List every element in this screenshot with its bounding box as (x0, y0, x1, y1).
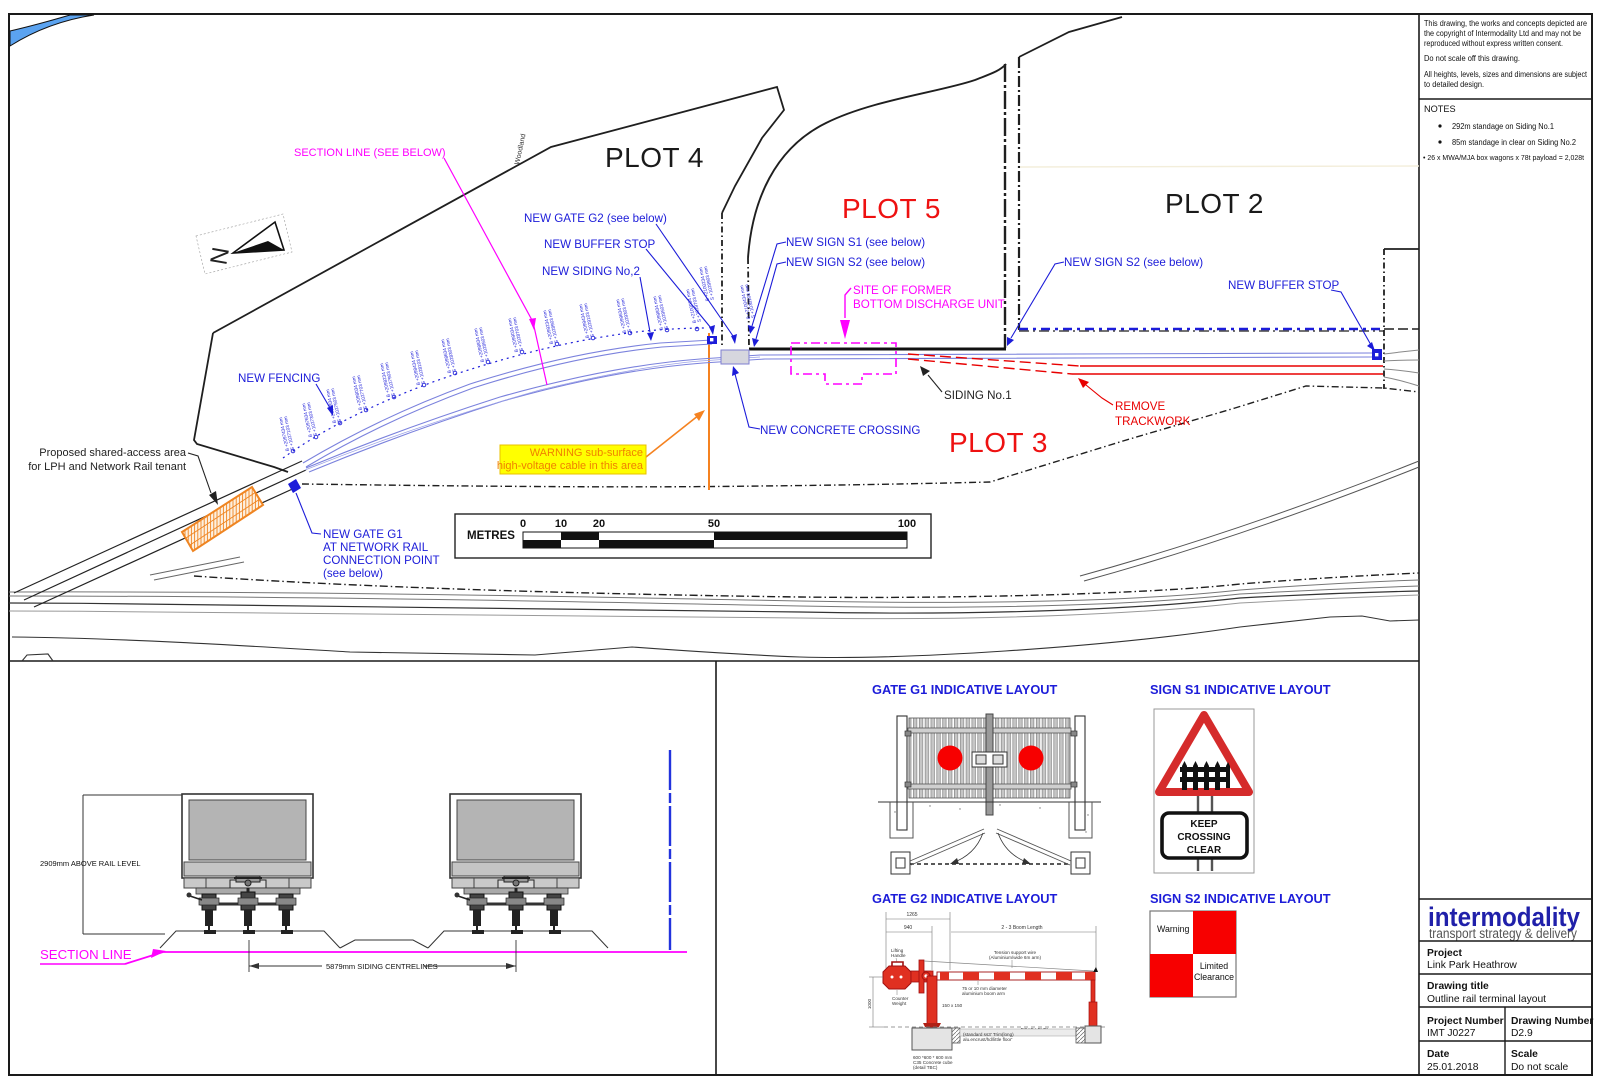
svg-text:5879mm SIDING CENTRELINES: 5879mm SIDING CENTRELINES (326, 962, 438, 971)
svg-text:SIDING No.1: SIDING No.1 (944, 389, 1012, 402)
svg-text:Project: Project (1427, 948, 1462, 959)
svg-text:Drawing Number: Drawing Number (1511, 1016, 1593, 1027)
svg-text:1000: 1000 (867, 998, 872, 1009)
svg-text:Do not scale: Do not scale (1511, 1062, 1569, 1073)
svg-text:NEW SIGN S1 (see below): NEW SIGN S1 (see below) (786, 236, 925, 249)
svg-text:1265: 1265 (906, 912, 917, 918)
svg-text:Do not scale off this drawing.: Do not scale off this drawing. (1424, 54, 1520, 63)
svg-text:0: 0 (520, 518, 526, 530)
svg-text:Project Number: Project Number (1427, 1016, 1504, 1027)
svg-text:20: 20 (593, 518, 605, 530)
svg-text:alu.encrust/hd/little floor': alu.encrust/hd/little floor' (963, 1037, 1013, 1042)
svg-text:PLOT 3: PLOT 3 (949, 427, 1048, 458)
svg-text:TRACKWORK: TRACKWORK (1115, 415, 1191, 428)
svg-text:D2.9: D2.9 (1511, 1028, 1533, 1039)
svg-text:Date: Date (1427, 1049, 1450, 1060)
svg-text:REMOVE: REMOVE (1115, 400, 1166, 413)
svg-text:BOTTOM DISCHARGE UNIT: BOTTOM DISCHARGE UNIT (853, 298, 1005, 311)
svg-text:This drawing, the works and co: This drawing, the works and concepts dep… (1424, 19, 1587, 28)
svg-text:Scale: Scale (1511, 1049, 1538, 1060)
svg-text:Weight: Weight (892, 1001, 907, 1006)
svg-text:IMT J0227: IMT J0227 (1427, 1028, 1476, 1039)
svg-text:to detailed design.: to detailed design. (1424, 80, 1484, 89)
svg-text:NEW FENCING: NEW FENCING (238, 372, 320, 385)
svg-text:SECTION LINE: SECTION LINE (40, 947, 132, 962)
svg-text:high-voltage cable in this are: high-voltage cable in this area (497, 460, 644, 472)
svg-text:Clearance: Clearance (1194, 972, 1234, 982)
svg-text:NOTES: NOTES (1424, 104, 1456, 114)
svg-text:NEW GATE G1: NEW GATE G1 (323, 528, 403, 541)
svg-text:Drawing title: Drawing title (1427, 981, 1489, 992)
svg-text:CLEAR: CLEAR (1187, 845, 1222, 856)
svg-text:NEW GATE G2 (see below): NEW GATE G2 (see below) (524, 212, 667, 225)
svg-text:2 - 3 Boom Length: 2 - 3 Boom Length (1001, 925, 1042, 931)
svg-text:(see below): (see below) (323, 567, 383, 580)
svg-text:WARNING sub-surface: WARNING sub-surface (530, 447, 643, 459)
svg-text:10: 10 (555, 518, 567, 530)
svg-text:Warning: Warning (1157, 924, 1190, 934)
svg-text:2909mm ABOVE RAIL LEVEL: 2909mm ABOVE RAIL LEVEL (40, 859, 141, 868)
svg-text:GATE G2 INDICATIVE LAYOUT: GATE G2 INDICATIVE LAYOUT (872, 891, 1058, 906)
svg-text:940: 940 (904, 925, 913, 931)
svg-text:for LPH and Network Rail tenan: for LPH and Network Rail tenant (28, 461, 186, 473)
svg-text:Limited: Limited (1200, 961, 1228, 971)
svg-text:150 x 150: 150 x 150 (942, 1003, 963, 1008)
svg-text:NEW SIGN S2 (see below): NEW SIGN S2 (see below) (786, 256, 925, 269)
svg-text:SITE OF FORMER: SITE OF FORMER (853, 284, 952, 297)
svg-text:reproduced without express wri: reproduced without express written conse… (1424, 39, 1563, 48)
svg-text:85m standage in clear on Sidin: 85m standage in clear on Siding No.2 (1452, 138, 1577, 147)
svg-text:NEW SIDING No,2: NEW SIDING No,2 (542, 265, 640, 278)
svg-text:SECTION LINE (SEE BELOW): SECTION LINE (SEE BELOW) (294, 147, 446, 159)
svg-text:Link Park Heathrow: Link Park Heathrow (1427, 960, 1517, 971)
svg-text:NEW BUFFER STOP: NEW BUFFER STOP (1228, 279, 1339, 292)
svg-text:Proposed shared-access area: Proposed shared-access area (39, 447, 187, 459)
svg-text:PLOT 4: PLOT 4 (605, 142, 704, 173)
svg-text:AT NETWORK RAIL: AT NETWORK RAIL (323, 541, 429, 554)
svg-text:SIGN S1 INDICATIVE LAYOUT: SIGN S1 INDICATIVE LAYOUT (1150, 682, 1331, 697)
svg-text:All heights, levels, sizes and: All heights, levels, sizes and dimension… (1424, 70, 1588, 79)
svg-text:Outline rail terminal layout: Outline rail terminal layout (1427, 994, 1546, 1005)
svg-text:PLOT 5: PLOT 5 (842, 193, 941, 224)
svg-text:Handle: Handle (891, 953, 906, 958)
svg-text:KEEP: KEEP (1190, 819, 1218, 830)
svg-text:METRES: METRES (467, 530, 515, 542)
svg-text:CONNECTION POINT: CONNECTION POINT (323, 554, 440, 567)
svg-text:50: 50 (708, 518, 720, 530)
svg-text:(Aluminium/wide 6m arm): (Aluminium/wide 6m arm) (989, 955, 1042, 960)
svg-text:transport strategy & delivery: transport strategy & delivery (1429, 926, 1577, 941)
svg-text:CROSSING: CROSSING (1177, 832, 1231, 843)
svg-text:(detail TBC): (detail TBC) (913, 1065, 938, 1070)
svg-text:PLOT 2: PLOT 2 (1165, 188, 1264, 219)
svg-text:the copyright of Intermodality: the copyright of Intermodality Ltd and m… (1424, 29, 1581, 38)
svg-text:aluminium boom arm: aluminium boom arm (962, 991, 1005, 996)
svg-text:• 26 x MWA/MJA box wagons x 78: • 26 x MWA/MJA box wagons x 78t payload … (1423, 153, 1585, 162)
svg-text:GATE G1 INDICATIVE LAYOUT: GATE G1 INDICATIVE LAYOUT (872, 682, 1058, 697)
svg-text:25.01.2018: 25.01.2018 (1427, 1062, 1479, 1073)
svg-text:NEW BUFFER STOP: NEW BUFFER STOP (544, 238, 655, 251)
svg-text:100: 100 (898, 518, 916, 530)
svg-text:SIGN S2 INDICATIVE LAYOUT: SIGN S2 INDICATIVE LAYOUT (1150, 891, 1331, 906)
svg-text:292m standage on Siding No.1: 292m standage on Siding No.1 (1452, 122, 1555, 131)
svg-text:NEW CONCRETE CROSSING: NEW CONCRETE CROSSING (760, 424, 920, 437)
svg-text:NEW SIGN S2 (see below): NEW SIGN S2 (see below) (1064, 256, 1203, 269)
